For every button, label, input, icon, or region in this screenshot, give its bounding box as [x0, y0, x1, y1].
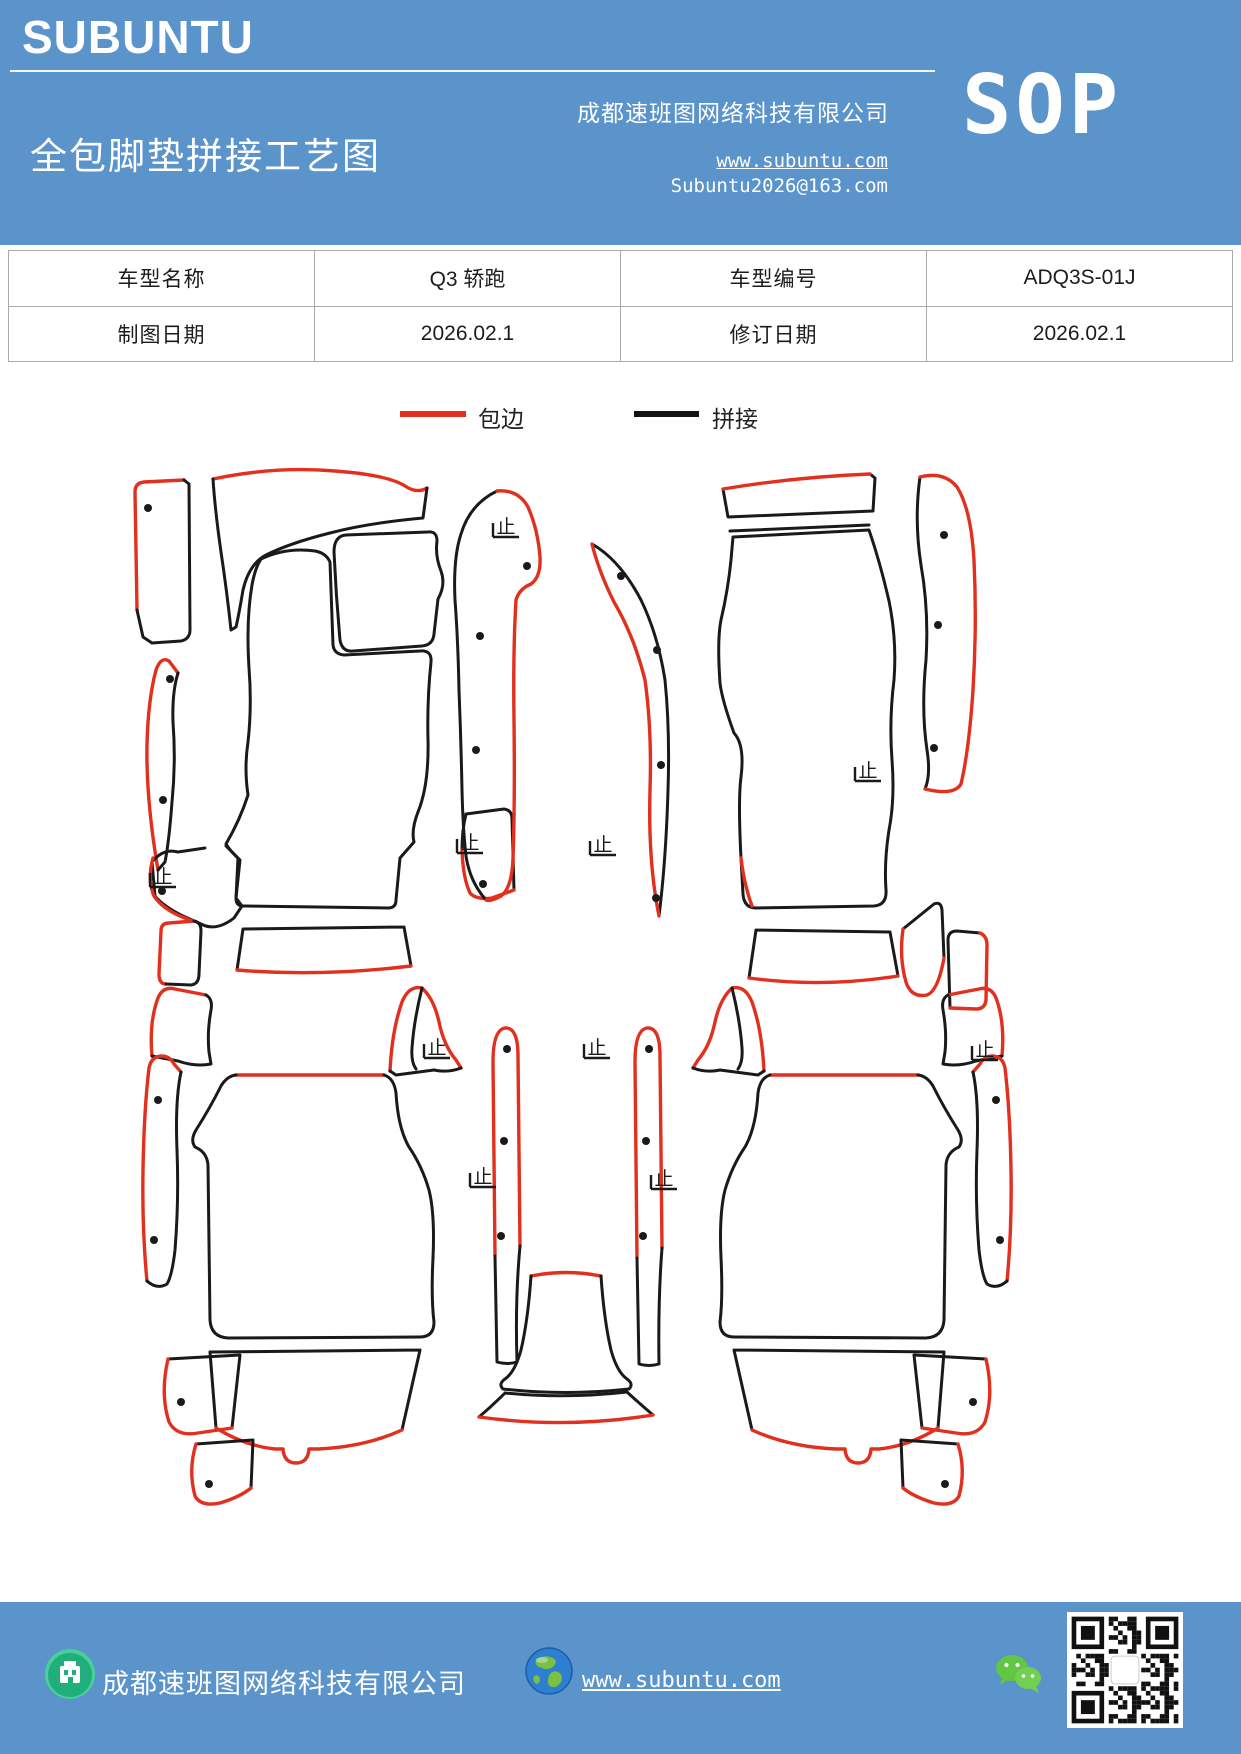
svg-text:止: 止	[427, 1037, 446, 1059]
legend-splice-label: 拼接	[712, 400, 758, 434]
alignment-dot	[934, 621, 942, 629]
mat-piece-outline	[479, 1392, 653, 1417]
alignment-dot	[497, 1232, 505, 1240]
sop-document-page: SUBUNTU 全包脚垫拼接工艺图 成都速班图网络科技有限公司 SOP www.…	[0, 0, 1241, 1754]
qr-code	[1067, 1612, 1183, 1728]
mat-piece-outline	[719, 530, 895, 908]
mat-piece-outline	[159, 921, 194, 984]
header-divider	[10, 70, 935, 72]
alignment-dot	[476, 632, 484, 640]
alignment-dot	[930, 744, 938, 752]
mat-piece-outline	[486, 491, 540, 901]
mat-piece-outline	[168, 1355, 240, 1428]
svg-text:止: 止	[654, 1168, 673, 1190]
alignment-dot	[472, 746, 480, 754]
stop-marker: 止	[972, 1039, 998, 1061]
mat-piece-outline	[903, 1444, 962, 1504]
mat-piece-outline	[592, 544, 669, 916]
mat-piece-outline	[216, 1428, 402, 1463]
svg-text:止: 止	[460, 832, 479, 854]
model-name-value: Q3 轿跑	[315, 251, 621, 307]
mat-piece-outline	[193, 1075, 434, 1338]
mat-piece-outline	[914, 1355, 986, 1428]
mat-piece-outline	[237, 927, 411, 970]
legend: 包边 拼接	[0, 400, 1241, 430]
mat-piece-outline	[213, 470, 427, 491]
legend-edge-binding-swatch	[400, 411, 466, 417]
alignment-dot	[996, 1236, 1004, 1244]
header-banner: SUBUNTU 全包脚垫拼接工艺图 成都速班图网络科技有限公司 SOP www.…	[0, 0, 1241, 245]
mat-piece-outline	[973, 1072, 1007, 1286]
svg-text:止: 止	[975, 1039, 994, 1061]
alignment-dot	[940, 531, 948, 539]
mat-piece-outline	[903, 903, 944, 958]
legend-edge-binding-label: 包边	[478, 400, 524, 434]
mat-piece-outline	[158, 673, 178, 870]
mat-piece-outline	[948, 931, 980, 1008]
mat-piece-outline	[237, 966, 411, 973]
mat-piece-outline	[164, 1359, 232, 1434]
header-website-link[interactable]: www.subuntu.com	[716, 150, 888, 172]
stop-marker: 止	[457, 832, 483, 854]
mat-piece-outline	[501, 1276, 631, 1393]
stop-marker: 止	[493, 516, 519, 538]
mat-piece-outline	[135, 480, 184, 610]
alignment-dot	[657, 761, 665, 769]
alignment-dot	[642, 1137, 650, 1145]
header-email: Subuntu2026@163.com	[671, 175, 888, 197]
footer-company-name: 成都速班图网络科技有限公司	[102, 1662, 466, 1701]
footer-banner: 成都速班图网络科技有限公司 www.subuntu.com	[0, 1602, 1241, 1754]
model-name-label: 车型名称	[9, 251, 315, 307]
alignment-dot	[144, 504, 152, 512]
mat-piece-outline	[723, 474, 870, 489]
mat-piece-outline	[749, 930, 898, 978]
revise-date-value: 2026.02.1	[927, 306, 1233, 362]
mat-piece-outline	[147, 1072, 181, 1286]
alignment-dot	[653, 646, 661, 654]
vehicle-info-table: 车型名称 Q3 轿跑 车型编号 ADQ3S-01J 制图日期 2026.02.1…	[8, 250, 1233, 362]
mat-piece-outline	[950, 933, 987, 1009]
alignment-dot	[992, 1096, 1000, 1104]
alignment-dot	[523, 562, 531, 570]
stop-marker: 止	[470, 1166, 496, 1188]
draw-date-label: 制图日期	[9, 306, 315, 362]
mat-piece-outline	[196, 1440, 253, 1488]
mat-piece-outline	[151, 988, 206, 1056]
draw-date-value: 2026.02.1	[315, 306, 621, 362]
svg-text:止: 止	[593, 834, 612, 856]
mat-piece-outline	[637, 1248, 662, 1366]
mat-piece-outline	[734, 1350, 944, 1430]
mat-piece-outline	[531, 1273, 601, 1277]
wechat-icon	[992, 1652, 1046, 1700]
alignment-dot	[166, 675, 174, 683]
svg-text:止: 止	[496, 516, 515, 538]
alignment-dot	[617, 572, 625, 580]
alignment-dot	[159, 796, 167, 804]
stop-marker: 止	[424, 1037, 450, 1059]
mat-piece-outline	[137, 480, 190, 643]
model-code-label: 车型编号	[621, 251, 927, 307]
alignment-dot	[652, 894, 660, 902]
svg-text:止: 止	[473, 1166, 492, 1188]
sop-label: SOP	[962, 58, 1122, 153]
mat-piece-outline	[479, 1415, 653, 1423]
header-company-name: 成都速班图网络科技有限公司	[577, 94, 889, 128]
revise-date-label: 修订日期	[621, 306, 927, 362]
mat-piece-outline	[752, 1428, 938, 1463]
table-row: 制图日期 2026.02.1 修订日期 2026.02.1	[9, 306, 1233, 362]
alignment-dot	[503, 1045, 511, 1053]
alignment-dot	[177, 1398, 185, 1406]
alignment-dot	[154, 1096, 162, 1104]
mat-piece-outline	[192, 1444, 251, 1504]
mat-piece-outline	[495, 1246, 520, 1364]
alignment-dot	[639, 1232, 647, 1240]
alignment-dot	[205, 1480, 213, 1488]
table-row: 车型名称 Q3 轿跑 车型编号 ADQ3S-01J	[9, 251, 1233, 307]
mat-piece-outline	[213, 479, 427, 630]
svg-text:止: 止	[858, 760, 877, 782]
stop-marker: 止	[590, 834, 616, 856]
alignment-dot	[479, 880, 487, 888]
alignment-dot	[500, 1137, 508, 1145]
legend-splice-swatch	[634, 411, 699, 417]
alignment-dot	[645, 1045, 653, 1053]
floor-mat-pattern-diagram: 止止止止止止止止止止	[0, 430, 1241, 1545]
globe-icon	[524, 1646, 574, 1696]
footer-website-link[interactable]: www.subuntu.com	[582, 1668, 781, 1693]
mat-piece-outline	[720, 1075, 961, 1338]
mat-piece-outline	[917, 477, 928, 789]
brand-logo: SUBUNTU	[22, 10, 254, 64]
stop-marker: 止	[150, 866, 176, 888]
alignment-dot	[969, 1398, 977, 1406]
stop-marker: 止	[855, 760, 881, 782]
svg-text:止: 止	[153, 866, 172, 888]
model-code-value: ADQ3S-01J	[927, 251, 1233, 307]
mat-piece-outline	[901, 1440, 958, 1488]
mat-piece-outline	[334, 532, 443, 651]
stop-marker: 止	[584, 1037, 610, 1059]
alignment-dot	[941, 1480, 949, 1488]
mat-piece-outline	[693, 988, 764, 1071]
page-title: 全包脚垫拼接工艺图	[30, 126, 381, 180]
svg-text:止: 止	[587, 1037, 606, 1059]
mat-piece-outline	[922, 1359, 990, 1434]
mat-piece-outline	[592, 544, 659, 916]
mat-piece-outline	[902, 929, 944, 995]
mat-piece-outline	[166, 921, 201, 985]
mat-piece-outline	[749, 976, 898, 983]
mat-piece-outline	[226, 550, 431, 908]
building-icon	[44, 1648, 96, 1700]
stop-marker: 止	[651, 1168, 677, 1190]
mat-piece-outline	[210, 1350, 420, 1430]
alignment-dot	[150, 1236, 158, 1244]
